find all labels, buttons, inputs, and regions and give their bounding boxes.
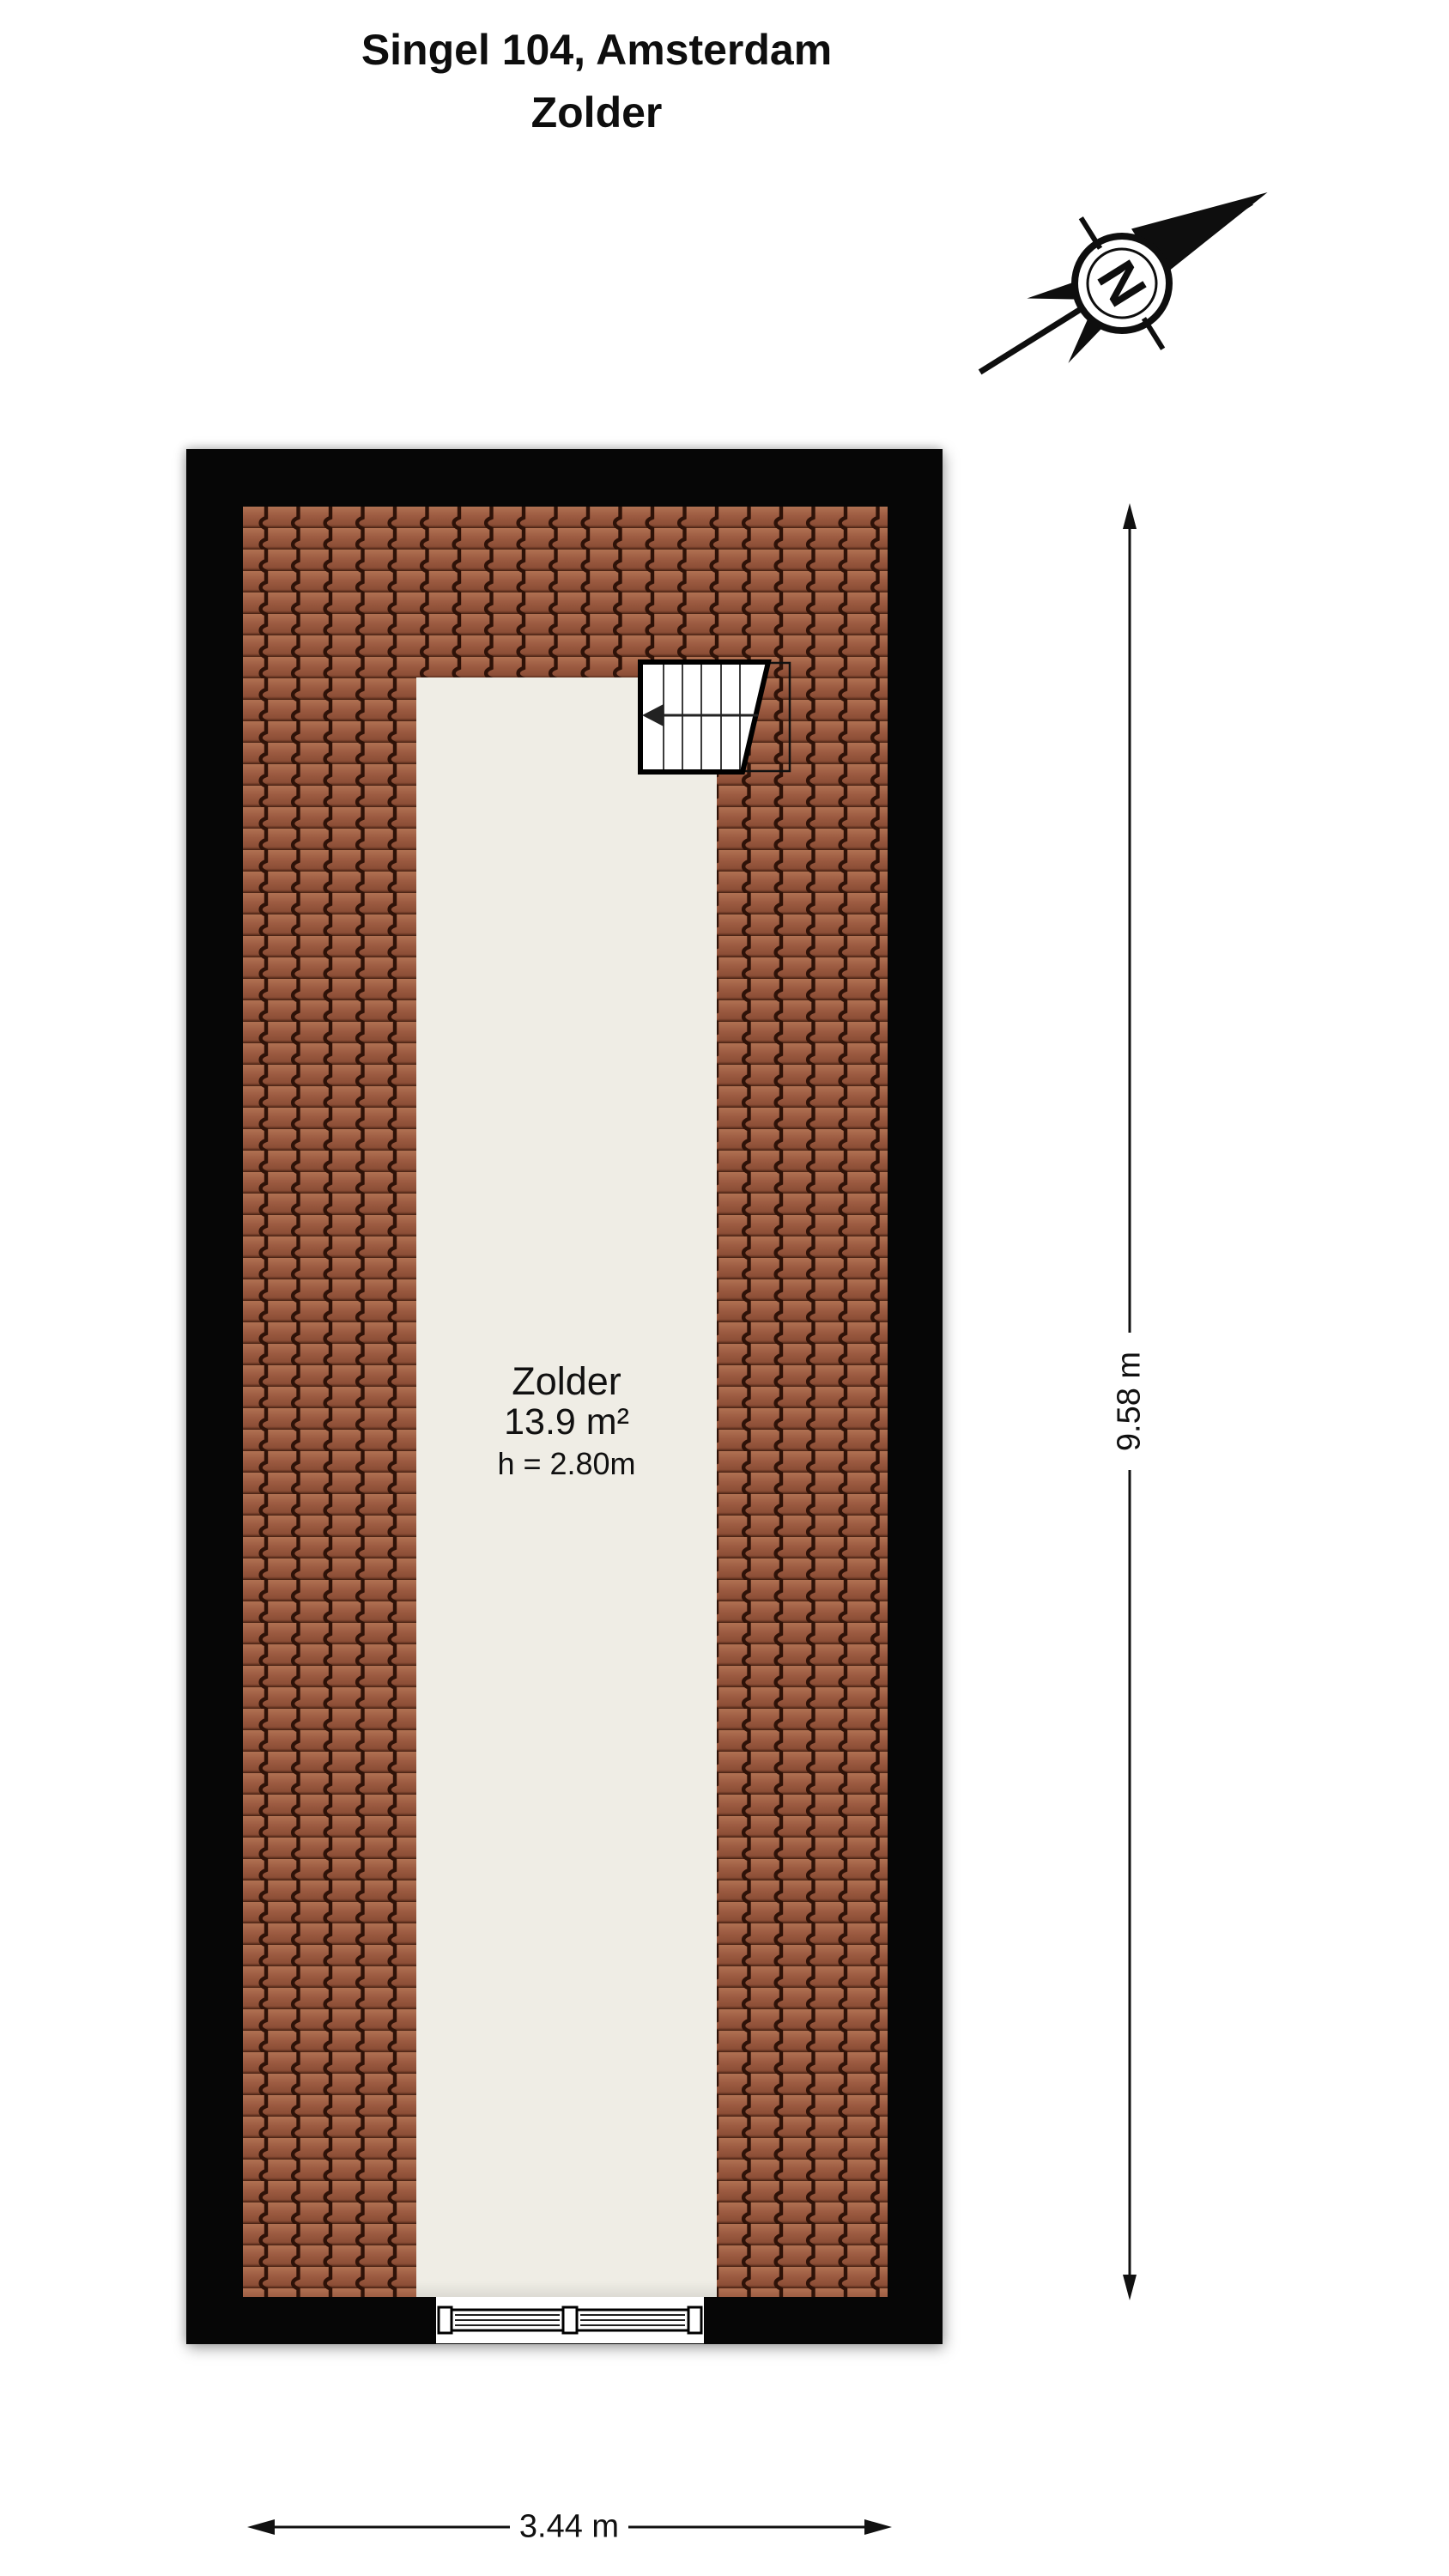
window xyxy=(436,2297,704,2343)
room-ceiling-height-label: h = 2.80m xyxy=(416,1446,717,1482)
room-labels: Zolder 13.9 m² h = 2.80m xyxy=(416,1362,717,1482)
width-dimension-label: 3.44 m xyxy=(519,2509,619,2546)
room-name-label: Zolder xyxy=(416,1362,717,1401)
room-zolder: Zolder 13.9 m² h = 2.80m xyxy=(416,677,717,2297)
floorplan-page: { "title": { "line1": "Singel 104, Amste… xyxy=(0,0,1449,2576)
compass-north-icon: N xyxy=(936,146,1348,438)
title-address: Singel 104, Amsterdam xyxy=(167,19,1026,82)
staircase-icon xyxy=(638,659,792,775)
title-floor: Zolder xyxy=(167,82,1026,144)
room-area-label: 13.9 m² xyxy=(416,1401,717,1443)
height-dimension-label: 9.58 m xyxy=(1112,1352,1149,1451)
floorplan: Zolder 13.9 m² h = 2.80m xyxy=(186,449,943,2344)
plan-title: Singel 104, Amsterdam Zolder xyxy=(167,19,1026,144)
window-glazing-icon xyxy=(436,2297,704,2343)
